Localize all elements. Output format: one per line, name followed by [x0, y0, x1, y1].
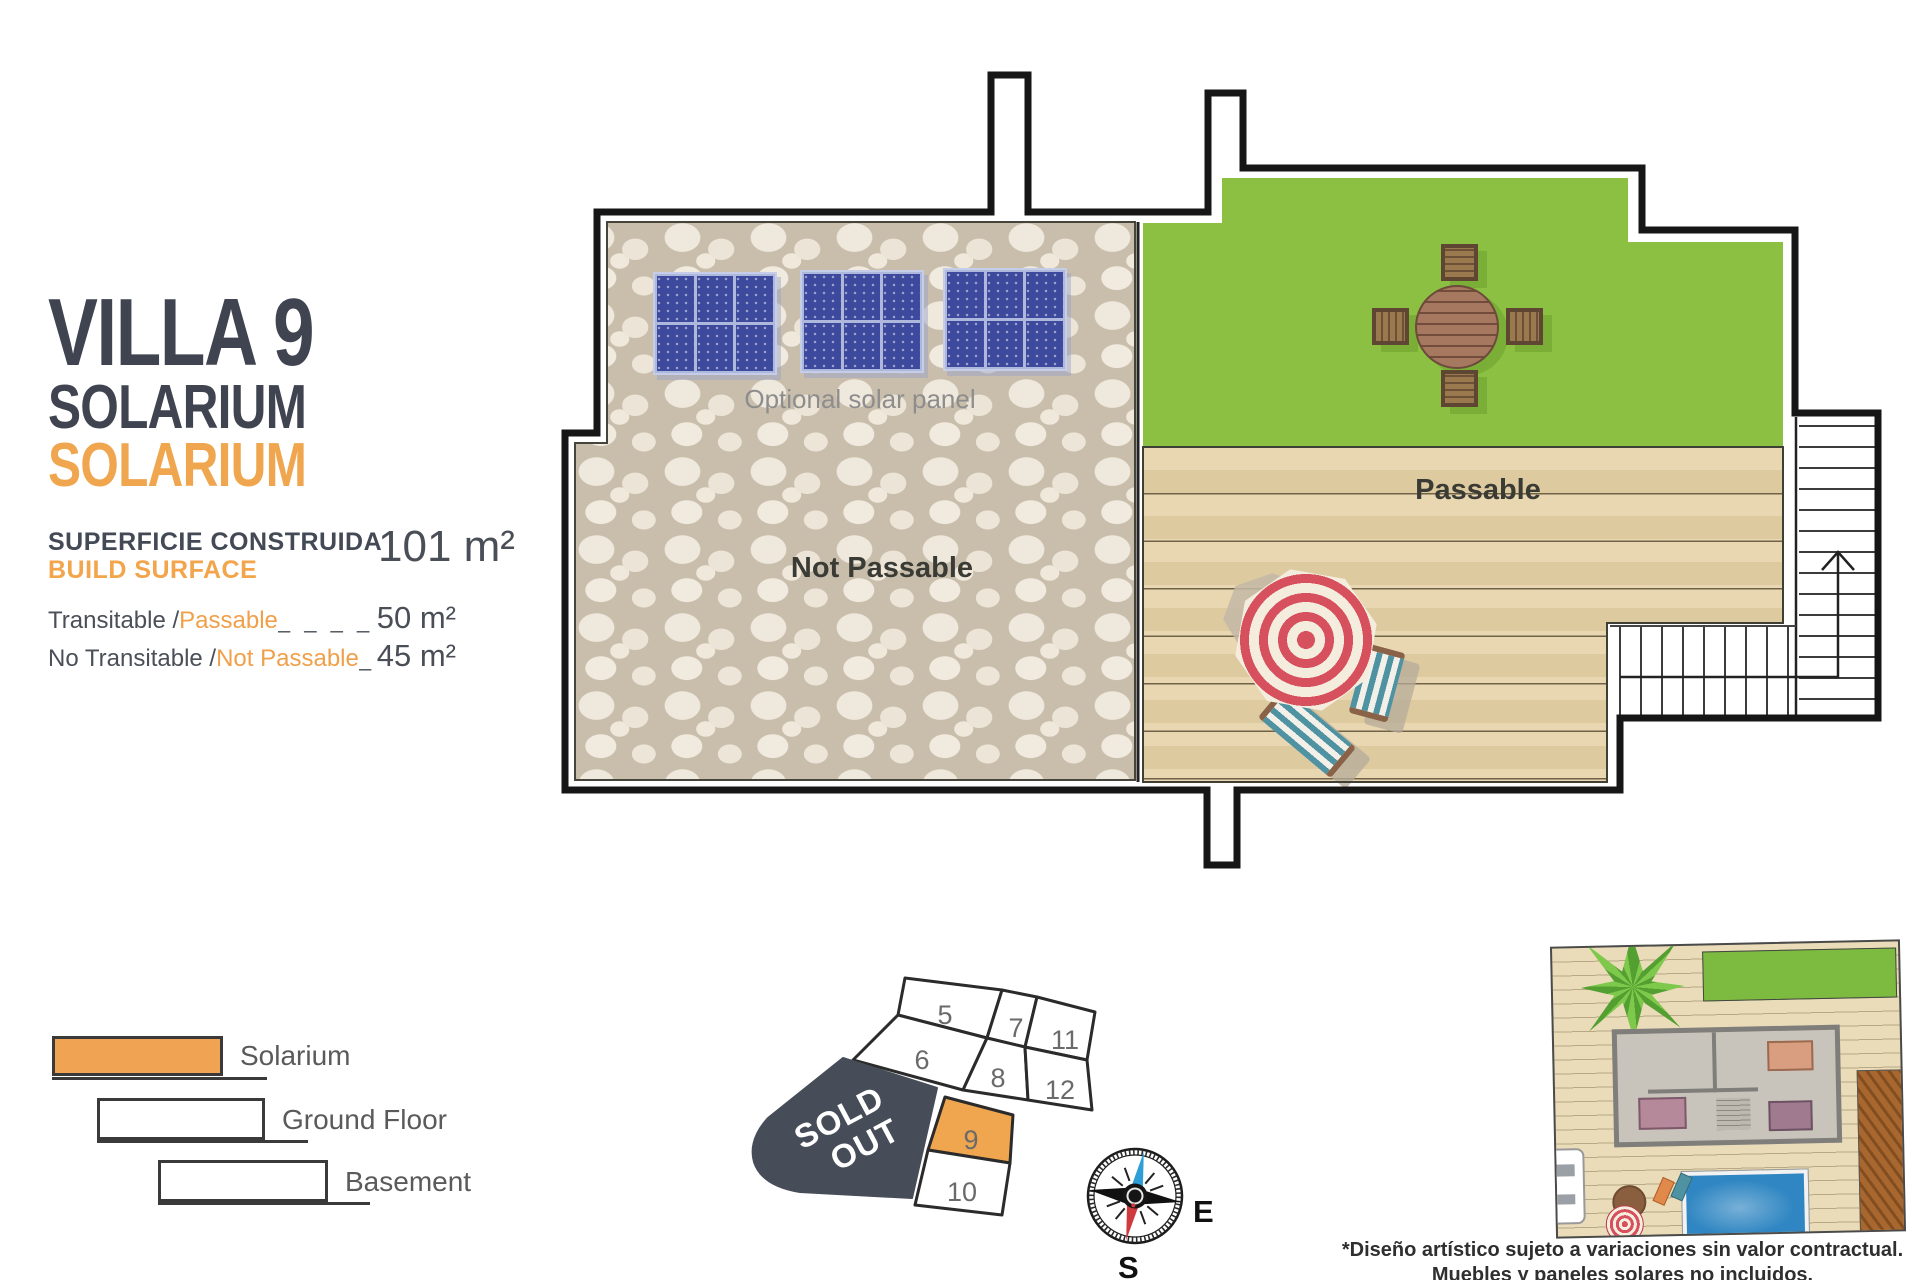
solar-panel-caption: Optional solar panel: [710, 384, 1010, 415]
area-row-not-passable: No Transitable / Not Passable _ _ _ _ 45…: [48, 638, 456, 674]
legend-label-solarium: Solarium: [240, 1040, 350, 1072]
legend-swatch-solarium: [52, 1036, 223, 1076]
interior-wall: [1712, 1032, 1717, 1092]
area-value: 50 m²: [377, 600, 456, 636]
compass-rose-icon: [1065, 1126, 1204, 1265]
palm-tree-icon: [1580, 939, 1686, 1040]
compass-south-label: S: [1118, 1250, 1139, 1280]
solarium-floor-plan: Optional solar panel Not Passable Passab…: [550, 70, 1895, 875]
plot-number: 8: [990, 1063, 1005, 1093]
disclaimer-line2: Muebles y paneles solares no incluidos.: [1330, 1263, 1915, 1280]
house-floorplan: [1612, 1025, 1842, 1148]
legend-label-basement: Basement: [345, 1166, 471, 1198]
legend-line: [52, 1077, 267, 1080]
passable-label: Passable: [1328, 474, 1628, 507]
dotted-leader: _ _ _ _ _ _ _ _: [278, 608, 377, 634]
legend-swatch-basement: [158, 1160, 328, 1202]
floor-name-accent: SOLARIUM: [48, 430, 306, 501]
plot-number: 7: [1008, 1013, 1023, 1043]
area-label: Transitable /: [48, 607, 179, 635]
lawn-patch: [1702, 947, 1897, 1001]
car-window: [1553, 1164, 1575, 1176]
garden-soil-strip: [1857, 1069, 1906, 1234]
compass-east-label: E: [1193, 1194, 1214, 1230]
not-passable-label: Not Passable: [732, 552, 1032, 585]
disclaimer-line1: *Diseño artístico sujeto a variaciones s…: [1330, 1238, 1915, 1263]
surface-label-es: SUPERFICIE CONSTRUIDA: [48, 528, 382, 557]
legend-swatch-ground-floor: [97, 1098, 265, 1140]
area-label-accent: Not Passable: [216, 645, 359, 673]
area-value: 45 m²: [377, 638, 456, 674]
plot-number: 11: [1051, 1025, 1079, 1055]
bed-icon: [1768, 1100, 1813, 1131]
dotted-leader: _ _ _ _: [359, 646, 377, 672]
area-label-accent: Passable: [179, 607, 278, 635]
area-row-passable: Transitable / Passable _ _ _ _ _ _ _ _ 5…: [48, 600, 456, 636]
disclaimer: *Diseño artístico sujeto a variaciones s…: [1330, 1238, 1915, 1280]
villa-site-plan-thumbnail: [1550, 939, 1906, 1238]
pool-icon: [1682, 1169, 1809, 1238]
mini-parasol-icon: [1605, 1205, 1644, 1239]
legend-line: [97, 1140, 308, 1143]
plot-number: 5: [937, 1000, 952, 1030]
plot-number: 10: [947, 1177, 977, 1207]
car-icon: [1550, 1148, 1586, 1225]
area-label: No Transitable /: [48, 645, 216, 673]
staircase-icon: [1716, 1098, 1751, 1131]
brochure-page: VILLA 9 SOLARIUM SOLARIUM SUPERFICIE CON…: [0, 0, 1920, 1280]
interior-wall: [1648, 1087, 1758, 1093]
legend-label-ground-floor: Ground Floor: [282, 1104, 447, 1136]
plot-number: 12: [1045, 1075, 1075, 1105]
bed-icon: [1767, 1040, 1814, 1071]
plot-number: 6: [914, 1045, 929, 1075]
plot-number-highlighted: 9: [963, 1125, 978, 1155]
car-window: [1553, 1194, 1575, 1204]
bed-icon: [1638, 1097, 1687, 1130]
legend-line: [158, 1202, 370, 1205]
surface-label-en: BUILD SURFACE: [48, 556, 257, 585]
surface-value: 101 m²: [378, 522, 515, 572]
floor-plan-outline: [550, 70, 1895, 875]
plot-location-map: SOLD OUT 5 6 7 8 11 12 9 10: [740, 960, 1110, 1270]
